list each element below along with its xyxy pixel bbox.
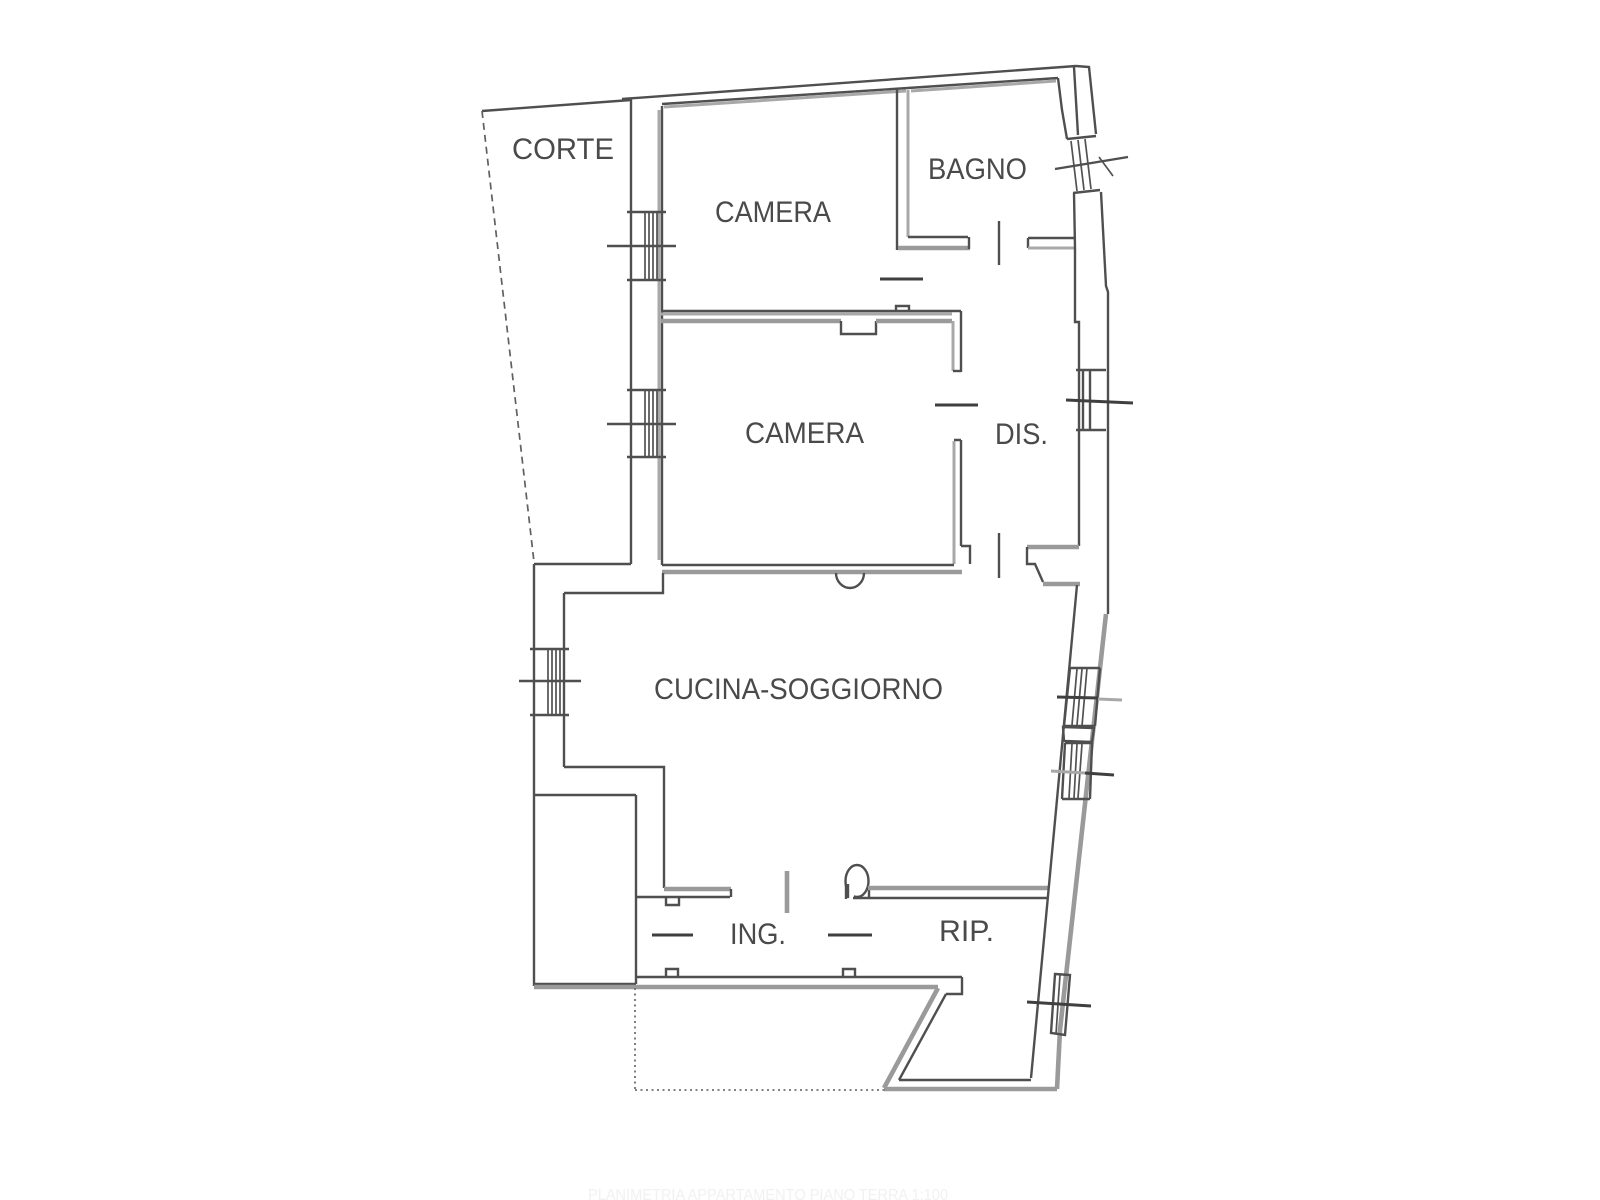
svg-text:CAMERA: CAMERA [715,196,831,229]
svg-text:PLANIMETRIA APPARTAMENTO PIANO: PLANIMETRIA APPARTAMENTO PIANO TERRA 1:1… [588,1187,948,1200]
svg-text:ING.: ING. [730,918,786,951]
svg-text:CAMERA: CAMERA [745,417,864,450]
svg-text:BAGNO: BAGNO [928,153,1027,186]
svg-text:DIS.: DIS. [995,418,1048,451]
svg-text:CORTE: CORTE [512,133,614,166]
svg-text:CUCINA-SOGGIORNO: CUCINA-SOGGIORNO [654,673,943,706]
svg-text:RIP.: RIP. [939,915,994,948]
